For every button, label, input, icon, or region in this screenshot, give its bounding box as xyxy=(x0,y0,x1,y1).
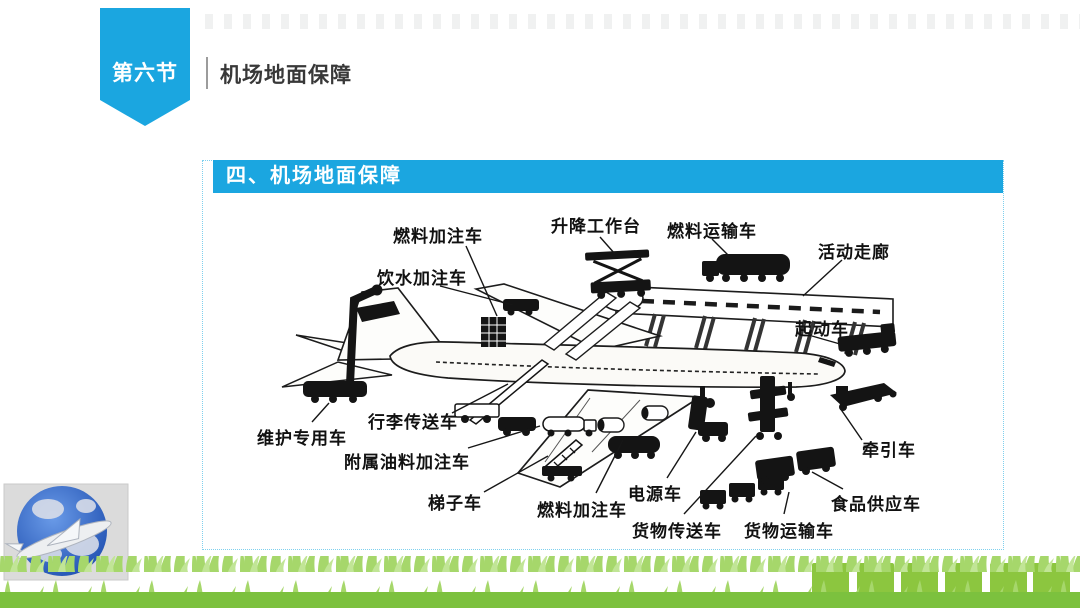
grass xyxy=(0,556,1080,608)
fuel-lattice-unit xyxy=(481,317,506,347)
label-baggage-conveyor: 行李传送车 xyxy=(368,408,458,433)
label-water-truck: 饮水加注车 xyxy=(377,264,467,289)
label-fuel-truck-1: 燃料加注车 xyxy=(393,222,483,247)
fuel-transporter-vehicle xyxy=(702,254,790,282)
tow-tractor-vehicle xyxy=(830,383,897,411)
label-maintenance-vehicle: 维护专用车 xyxy=(257,424,347,449)
scissor-lift-vehicle xyxy=(585,249,651,299)
label-tow-tractor: 牵引车 xyxy=(862,436,916,461)
aux-oil-truck-vehicle xyxy=(543,417,596,437)
label-fuel-transporter: 燃料运输车 xyxy=(667,217,757,242)
label-lift-platform: 升降工作台 xyxy=(551,212,641,237)
label-starter-vehicle: 起动车 xyxy=(795,315,849,340)
slide-root: 第六节 机场地面保障 四、机场地面保障 xyxy=(0,0,1080,608)
footer-decoration xyxy=(0,468,1080,608)
label-jet-bridge: 活动走廊 xyxy=(818,238,890,263)
